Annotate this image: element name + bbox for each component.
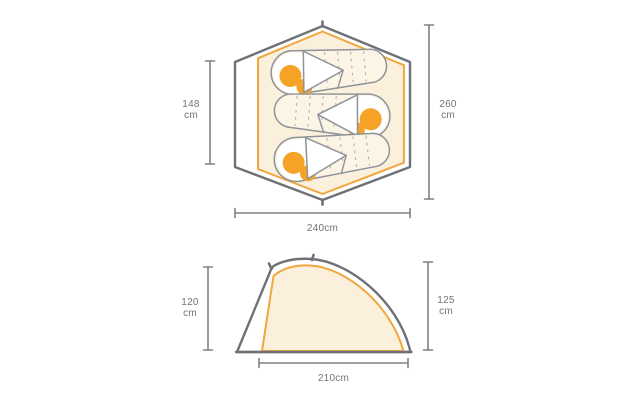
dim-label-top-left-unit: cm	[184, 110, 198, 121]
dim-top-left: 148 cm	[182, 61, 214, 164]
dim-label-top-left-value: 148	[182, 99, 200, 110]
dim-top-bottom: 240cm	[235, 209, 410, 235]
dim-side-right: 125 cm	[424, 262, 455, 350]
dim-label-top-right-unit: cm	[441, 110, 455, 121]
dim-label-side-right-unit: cm	[439, 306, 453, 317]
tent-dimension-diagram: 148 cm 260 cm 240cm 120	[0, 0, 640, 400]
dim-label-side-right-value: 125	[437, 295, 455, 306]
dim-label-top-bottom: 240cm	[307, 223, 338, 234]
pole-tip-apex	[312, 255, 314, 260]
inner-tent-side	[262, 265, 404, 351]
diagram-svg: 148 cm 260 cm 240cm 120	[0, 0, 640, 400]
pole-tip-front	[269, 264, 272, 270]
dim-side-bottom: 210cm	[259, 359, 408, 385]
dim-side-left: 120 cm	[181, 267, 212, 350]
top-view: 148 cm 260 cm 240cm	[182, 22, 457, 235]
dim-label-side-bottom: 210cm	[318, 373, 349, 384]
dim-label-top-right-value: 260	[439, 99, 457, 110]
dim-top-right: 260 cm	[425, 25, 457, 199]
dim-label-side-left-unit: cm	[183, 308, 197, 319]
side-view: 120 cm 125 cm 210cm	[181, 255, 455, 384]
dim-label-side-left-value: 120	[181, 297, 199, 308]
